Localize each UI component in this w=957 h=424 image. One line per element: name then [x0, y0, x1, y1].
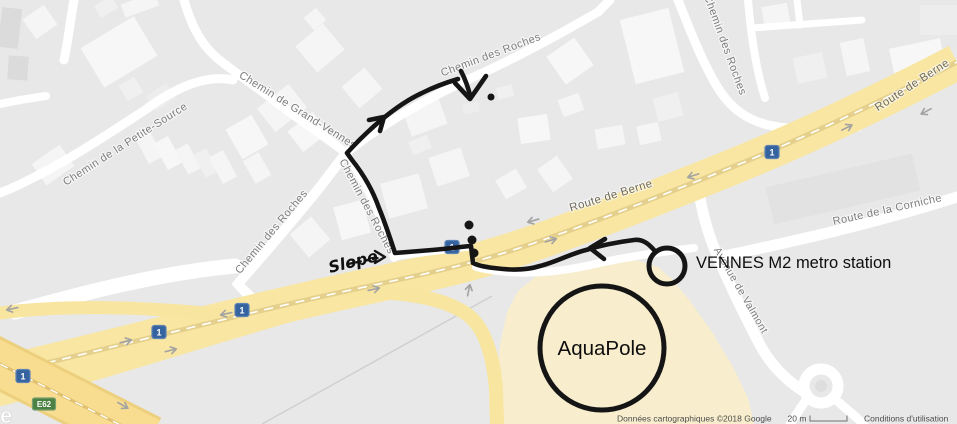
route-dot	[470, 249, 479, 258]
map-canvas[interactable]: 1 1 1 1 1 E62 Chemin de la Petite-Source…	[0, 0, 957, 424]
road-topright-stub	[797, 0, 800, 25]
berne-ramp-west	[0, 308, 225, 315]
terms-link[interactable]: Conditions d'utilisation	[864, 414, 949, 424]
e62-shield-text: E62	[37, 400, 52, 409]
station-label: VENNES M2 metro station	[696, 254, 891, 272]
destination-dot	[488, 94, 495, 101]
map-window: 1 1 1 1 1 E62 Chemin de la Petite-Source…	[0, 0, 957, 424]
route-dot	[468, 236, 477, 245]
map-data-attribution: Données cartographiques ©2018 Google	[617, 414, 772, 424]
roundabout	[804, 369, 838, 403]
route-1-shield-text: 1	[20, 372, 25, 382]
route-1-shield-text: 1	[156, 328, 161, 338]
aquapole-label: AquaPole	[558, 337, 647, 360]
route-1-shield: 1	[16, 370, 30, 383]
route-1-shield-text: 1	[239, 306, 244, 316]
route-1-shield: 1	[765, 146, 779, 159]
route-1-shield: 1	[235, 304, 249, 317]
google-watermark-fragment: e	[0, 403, 12, 424]
route-1-shield: 1	[152, 326, 166, 339]
route-dot	[465, 221, 474, 230]
scale-label: 20 m	[788, 414, 807, 424]
e62-shield: E62	[33, 398, 56, 410]
route-1-shield-text: 1	[769, 148, 774, 158]
